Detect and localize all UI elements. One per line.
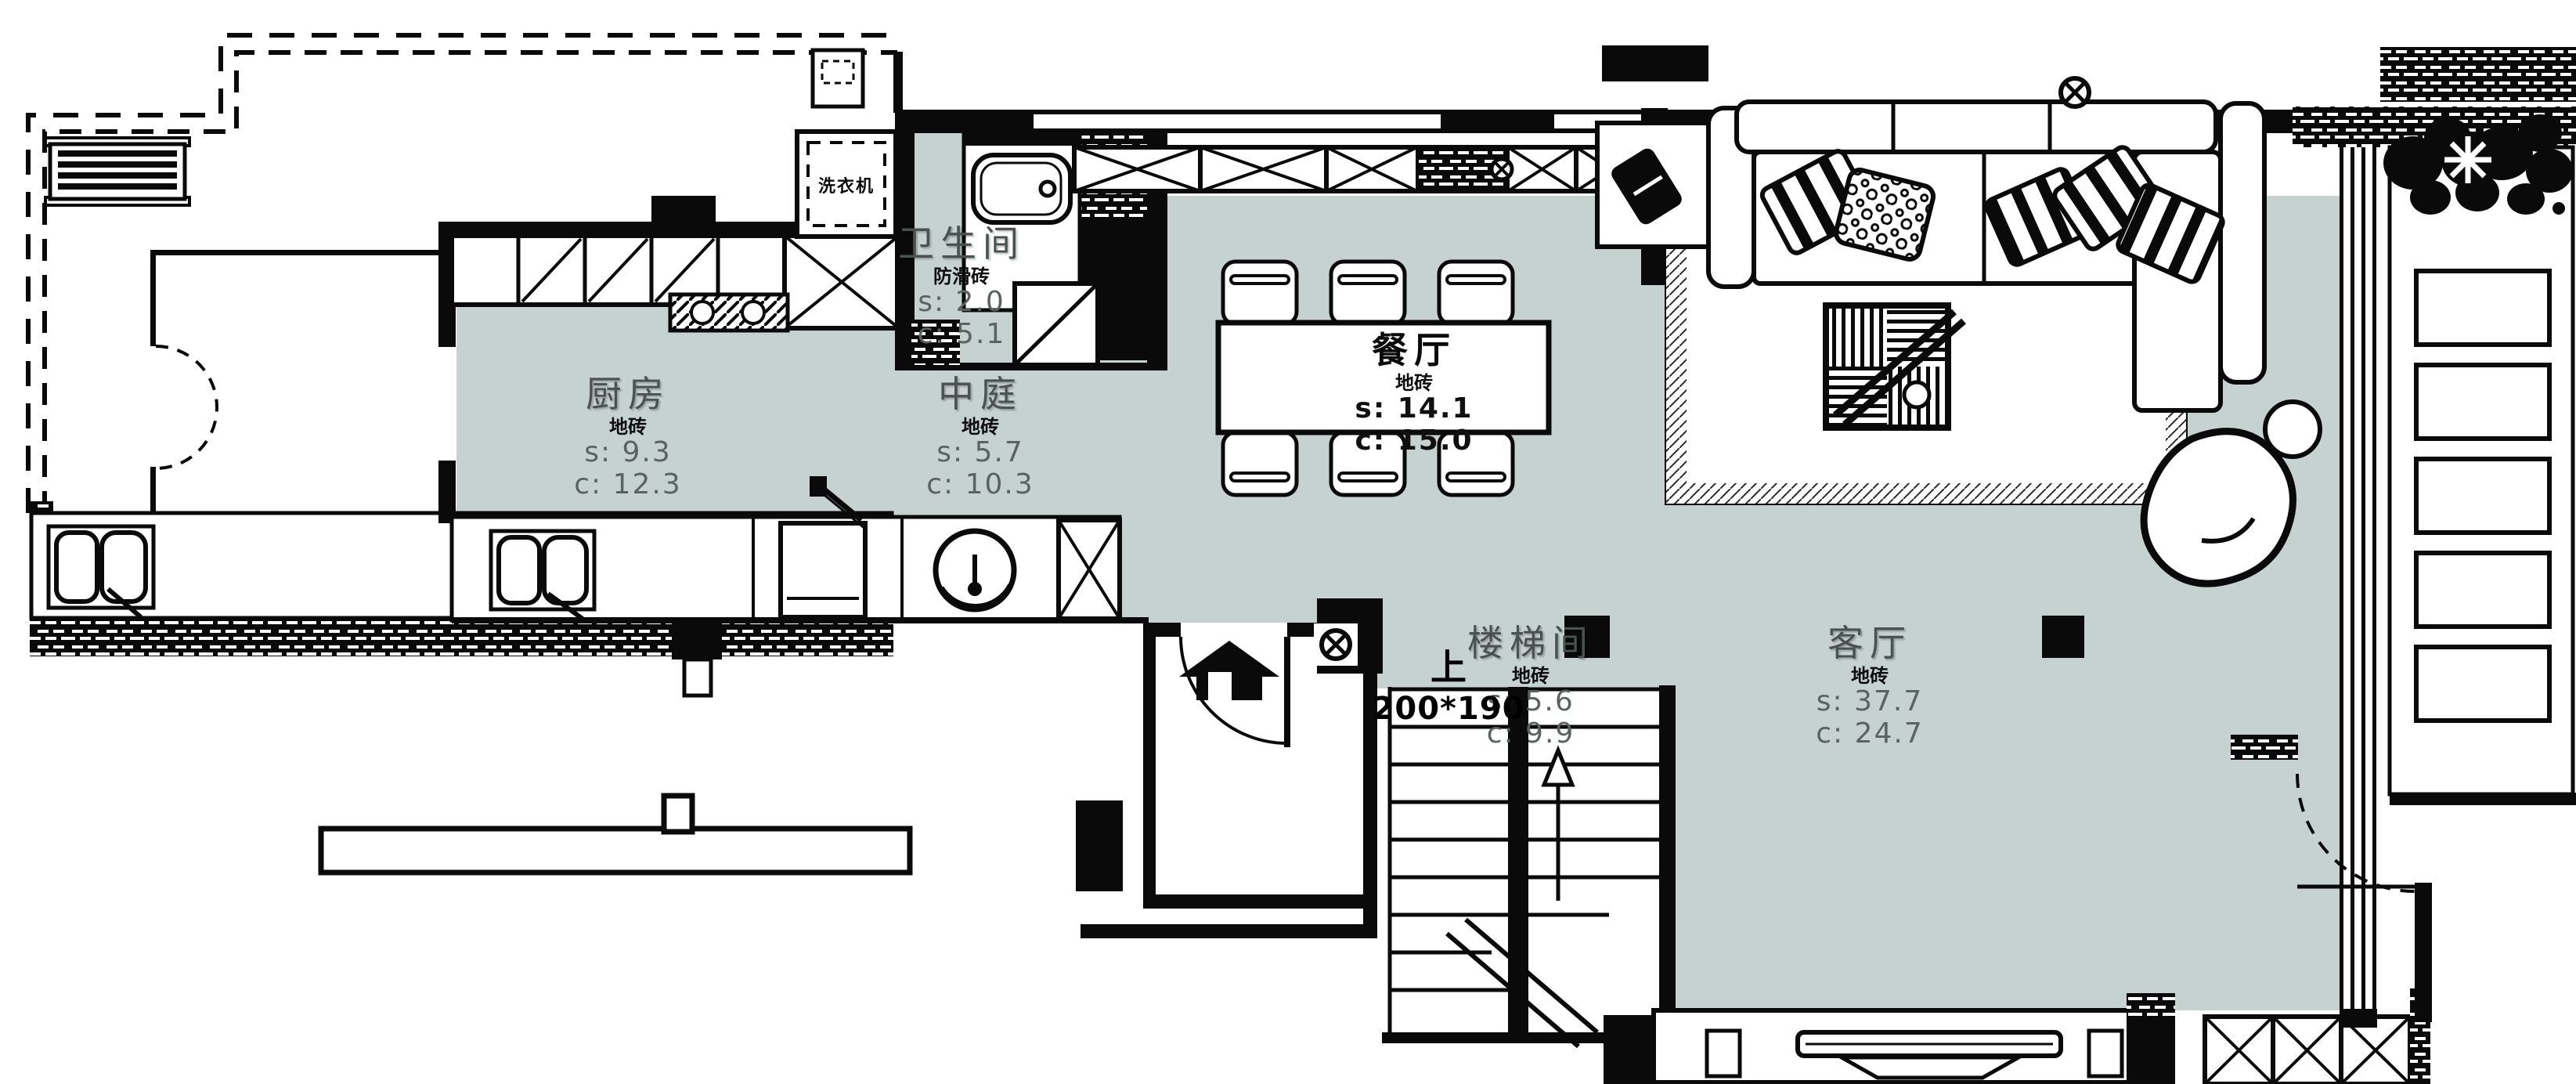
stair-tread-label: 200*190 — [1373, 692, 1525, 725]
kitchen-flue — [651, 196, 716, 237]
floor-plan-drawing — [0, 0, 2576, 1084]
balcony-pad — [2416, 647, 2549, 721]
dining-set — [1218, 262, 1549, 495]
garden-bench — [321, 829, 910, 873]
balcony-pad — [2416, 459, 2549, 533]
entry-door-leaf — [1284, 637, 1290, 747]
stair-up-label: 上 — [1431, 649, 1467, 686]
washer-label: 洗衣机 — [818, 172, 875, 197]
sofa-back — [1737, 102, 2216, 152]
column — [1564, 616, 1610, 658]
ball-table — [2265, 402, 2320, 457]
patio-door-arc — [156, 346, 217, 468]
speaker — [2089, 1031, 2122, 1076]
coffee-table — [1826, 305, 1964, 428]
sofa-right-arm — [2221, 103, 2264, 382]
storage-row — [1074, 147, 1644, 191]
column — [2042, 616, 2084, 658]
dining-chair — [1331, 262, 1405, 324]
dining-table — [1218, 323, 1549, 432]
drain-symbol-top — [2061, 78, 2089, 107]
dining-chair — [1439, 432, 1513, 495]
staircase — [1382, 685, 1676, 1046]
balcony-pad — [2416, 553, 2549, 627]
balcony-pad — [2416, 365, 2549, 439]
porch-pillar — [1076, 800, 1123, 891]
dishwasher — [781, 523, 865, 617]
speaker — [1707, 1031, 1740, 1076]
drain-symbol — [1314, 623, 1358, 666]
balcony-pad — [2416, 271, 2549, 345]
stove — [670, 294, 788, 331]
dining-chair — [1223, 432, 1297, 495]
floor-plan: 卫生间 防滑砖 s: 2.0 c: 5.1 厨房 地砖 s: 9.3 c: 12… — [0, 0, 2576, 1084]
ac-louver-unit — [45, 138, 189, 205]
stair-rail — [1508, 687, 1528, 1035]
dining-chair — [1331, 432, 1405, 495]
dining-chair — [1439, 262, 1513, 324]
dining-chair — [1223, 262, 1297, 324]
drain-symbol-small — [1492, 159, 1512, 179]
